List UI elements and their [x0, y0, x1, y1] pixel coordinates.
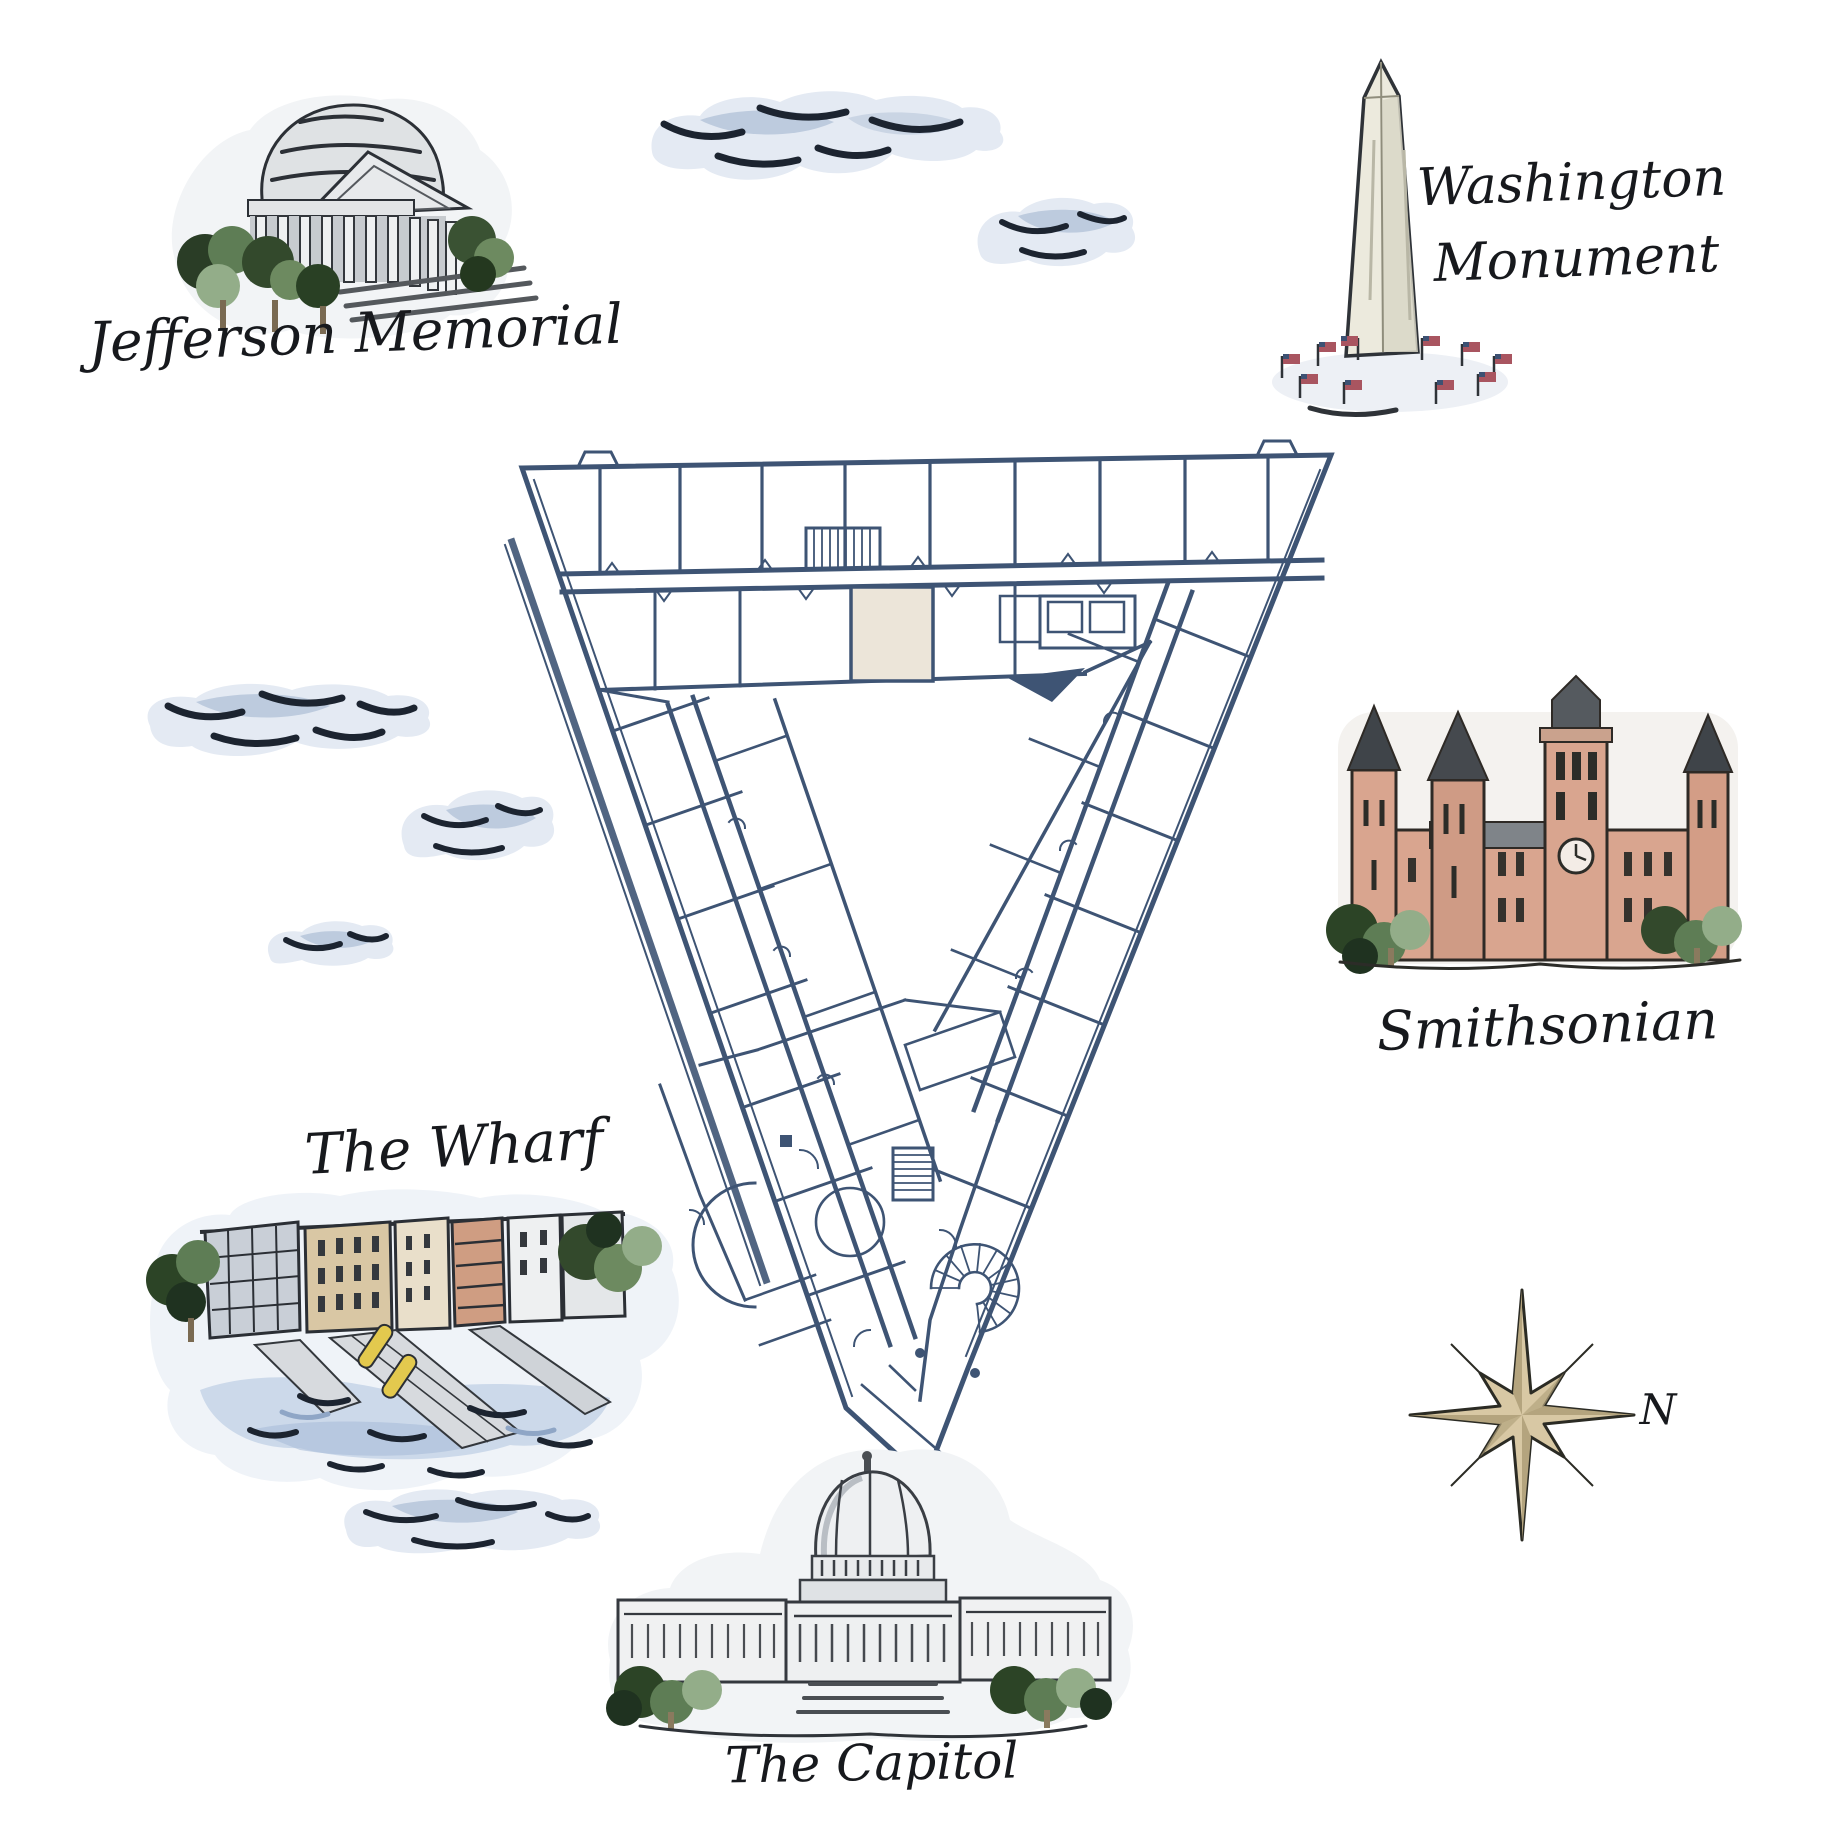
- smithsonian-illustration: [1326, 676, 1742, 974]
- floor-plan-courtyard: [775, 700, 940, 1180]
- floor-plan-elevator-block: [1000, 596, 1135, 648]
- the-wharf-label: The Wharf: [303, 1107, 614, 1188]
- dc-landmarks-map: Jefferson Memorial Wa: [0, 0, 1836, 1836]
- wharf-buildings: [205, 1212, 625, 1338]
- the-capitol-illustration: [606, 1449, 1133, 1742]
- cloud-top-small: [978, 198, 1136, 266]
- cloud-left-mid: [402, 790, 555, 860]
- map-illustration: Jefferson Memorial Wa: [0, 0, 1836, 1836]
- compass-north-label: N: [1639, 1385, 1678, 1434]
- floor-plan-highlighted-room: [851, 587, 933, 681]
- floor-plan-top-row-rooms: [600, 456, 1268, 573]
- the-wharf-illustration: [146, 1189, 679, 1490]
- floor-plan-stair-top: [806, 528, 880, 569]
- smithsonian-label: Smithsonian: [1376, 988, 1719, 1063]
- washington-monument-label-line1: Washington: [1416, 148, 1727, 219]
- jefferson-memorial-label: Jefferson Memorial: [77, 292, 624, 375]
- washington-monument-label-line2: Monument: [1431, 224, 1720, 294]
- cloud-bottom-left: [344, 1489, 600, 1553]
- cloud-left-large: [148, 684, 431, 756]
- the-capitol-label: The Capitol: [725, 1731, 1019, 1794]
- cloud-top-large: [651, 91, 1003, 180]
- floor-plan-corridor: [560, 560, 1322, 574]
- floor-plan-spiral-stair: [931, 1244, 1019, 1332]
- capitol-center-block: [786, 1602, 960, 1682]
- floor-plan-second-row: [600, 674, 1085, 690]
- compass-rose: [1410, 1290, 1634, 1540]
- cloud-left-small: [268, 921, 393, 966]
